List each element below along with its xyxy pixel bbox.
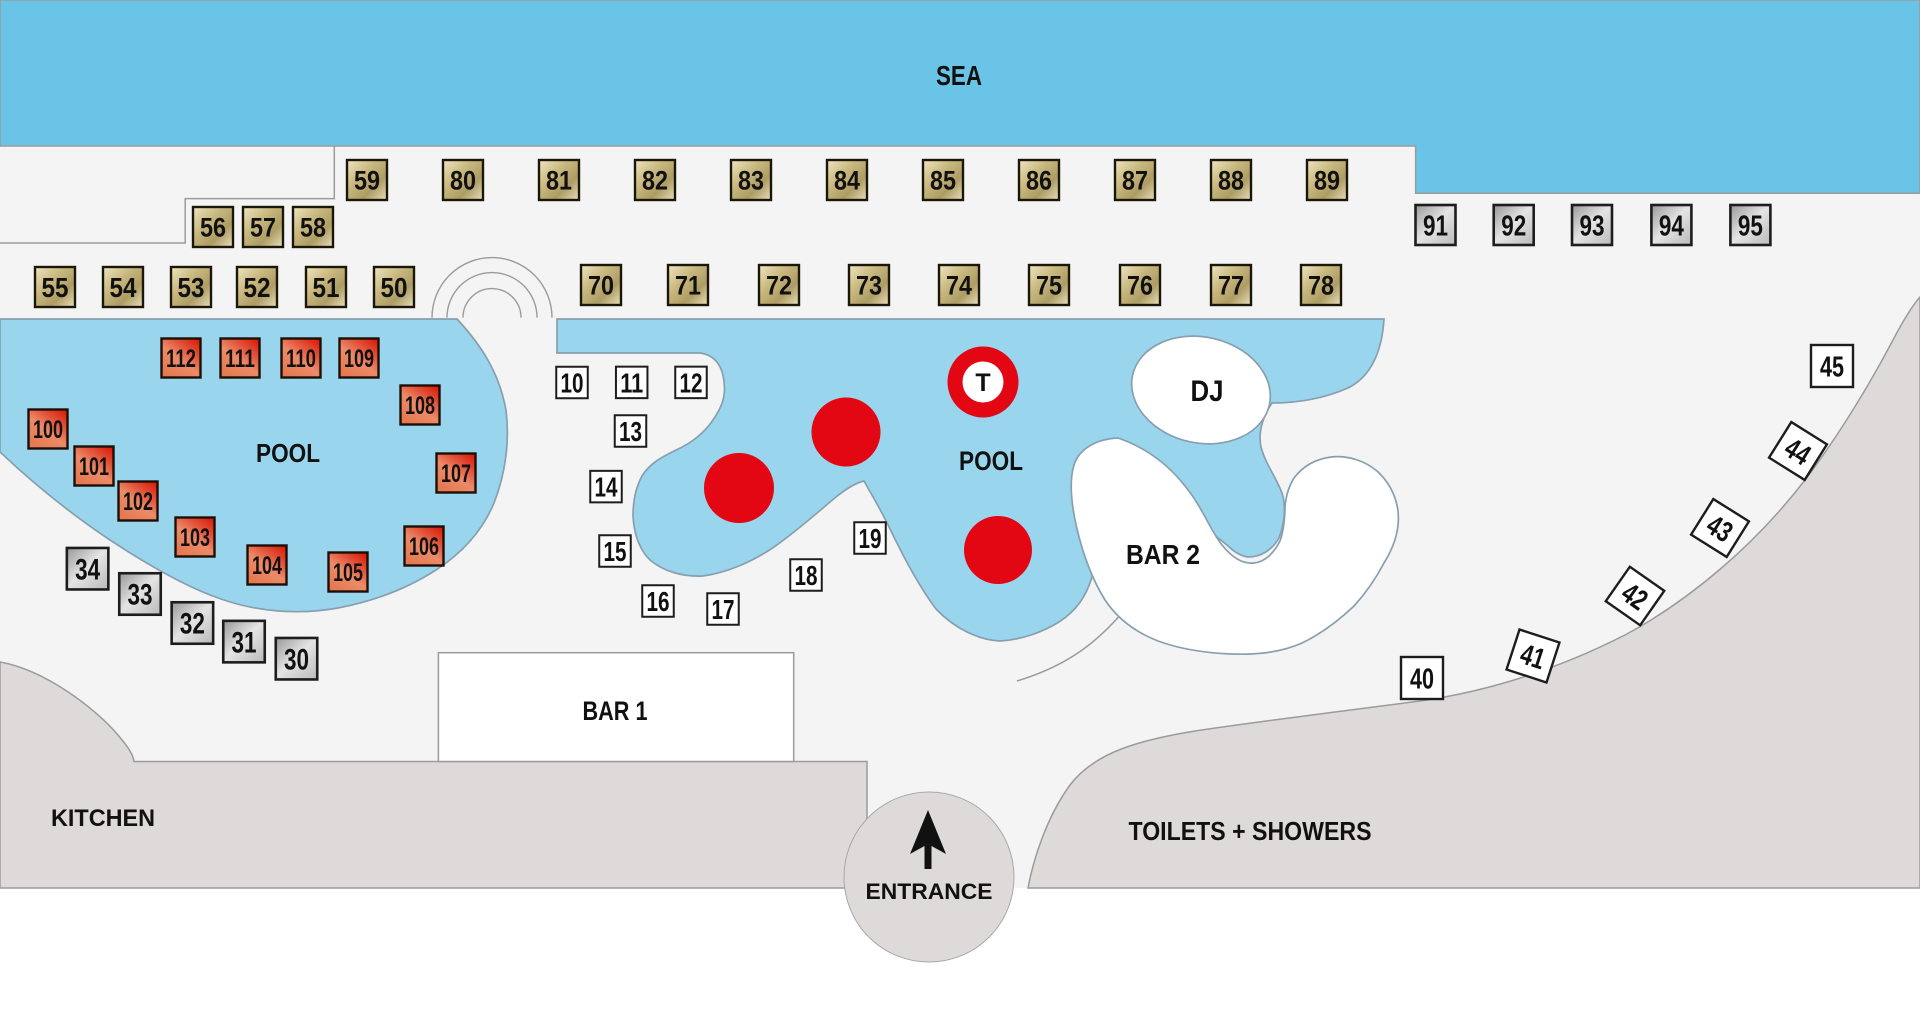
svg-text:110: 110 xyxy=(286,345,316,373)
svg-text:DJ: DJ xyxy=(1191,375,1224,408)
svg-text:53: 53 xyxy=(178,272,205,303)
svg-text:TOILETS + SHOWERS: TOILETS + SHOWERS xyxy=(1129,816,1372,846)
svg-text:108: 108 xyxy=(405,392,435,420)
svg-text:17: 17 xyxy=(712,594,735,625)
svg-text:BAR 2: BAR 2 xyxy=(1126,539,1200,570)
svg-text:19: 19 xyxy=(859,523,882,554)
svg-text:94: 94 xyxy=(1659,210,1684,242)
svg-text:77: 77 xyxy=(1218,271,1244,301)
svg-text:84: 84 xyxy=(834,166,860,196)
svg-text:40: 40 xyxy=(1410,663,1434,695)
svg-text:ENTRANCE: ENTRANCE xyxy=(866,879,993,904)
svg-text:81: 81 xyxy=(546,166,572,196)
svg-text:92: 92 xyxy=(1501,210,1526,242)
svg-text:105: 105 xyxy=(333,559,363,587)
svg-text:93: 93 xyxy=(1580,210,1605,242)
svg-text:14: 14 xyxy=(595,472,618,503)
svg-text:57: 57 xyxy=(250,213,276,243)
svg-text:58: 58 xyxy=(300,213,326,243)
svg-text:POOL: POOL xyxy=(256,438,320,468)
svg-text:BAR 1: BAR 1 xyxy=(583,696,648,726)
svg-text:54: 54 xyxy=(110,272,137,303)
svg-text:88: 88 xyxy=(1218,166,1244,196)
svg-text:51: 51 xyxy=(313,272,340,303)
svg-text:72: 72 xyxy=(766,271,792,301)
svg-text:76: 76 xyxy=(1127,271,1153,301)
svg-text:11: 11 xyxy=(620,367,643,398)
svg-text:85: 85 xyxy=(930,166,956,196)
svg-text:86: 86 xyxy=(1026,166,1052,196)
svg-text:POOL: POOL xyxy=(959,446,1023,476)
svg-text:71: 71 xyxy=(675,271,701,301)
svg-text:104: 104 xyxy=(252,552,282,580)
svg-text:10: 10 xyxy=(561,368,584,399)
svg-text:50: 50 xyxy=(381,272,408,303)
svg-text:13: 13 xyxy=(619,416,642,447)
svg-text:KITCHEN: KITCHEN xyxy=(51,805,155,832)
svg-text:52: 52 xyxy=(244,272,271,303)
svg-text:12: 12 xyxy=(680,367,703,398)
svg-text:74: 74 xyxy=(946,271,972,301)
svg-text:101: 101 xyxy=(79,453,109,481)
svg-text:33: 33 xyxy=(128,579,153,612)
svg-text:70: 70 xyxy=(588,271,614,301)
svg-text:31: 31 xyxy=(232,626,257,659)
svg-text:80: 80 xyxy=(450,166,476,196)
svg-text:106: 106 xyxy=(409,533,439,561)
svg-text:102: 102 xyxy=(123,488,153,516)
svg-text:30: 30 xyxy=(284,643,309,676)
svg-text:111: 111 xyxy=(225,345,255,373)
svg-text:SEA: SEA xyxy=(936,60,982,91)
svg-text:15: 15 xyxy=(604,536,627,567)
svg-text:91: 91 xyxy=(1423,210,1448,242)
svg-text:87: 87 xyxy=(1122,166,1148,196)
svg-text:18: 18 xyxy=(795,560,818,591)
svg-text:100: 100 xyxy=(33,416,63,444)
svg-text:89: 89 xyxy=(1314,166,1340,196)
svg-text:103: 103 xyxy=(180,524,210,552)
svg-text:45: 45 xyxy=(1820,351,1844,383)
svg-text:78: 78 xyxy=(1308,271,1334,301)
svg-text:56: 56 xyxy=(200,213,226,243)
svg-text:T: T xyxy=(975,369,990,397)
svg-text:109: 109 xyxy=(344,345,374,373)
svg-text:82: 82 xyxy=(642,166,668,196)
svg-text:75: 75 xyxy=(1036,271,1062,301)
svg-text:95: 95 xyxy=(1738,210,1763,242)
svg-text:59: 59 xyxy=(354,166,380,196)
svg-text:112: 112 xyxy=(166,345,196,373)
svg-text:16: 16 xyxy=(647,586,670,617)
svg-text:107: 107 xyxy=(441,460,471,488)
svg-text:55: 55 xyxy=(42,272,69,303)
svg-text:34: 34 xyxy=(75,553,100,586)
svg-text:83: 83 xyxy=(738,166,764,196)
svg-text:73: 73 xyxy=(856,271,882,301)
svg-text:32: 32 xyxy=(180,608,205,641)
